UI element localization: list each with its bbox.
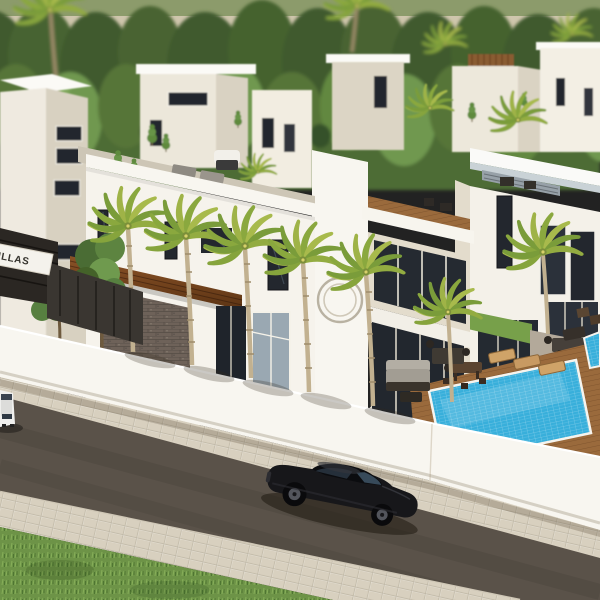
render-canvas: VILLAS: [0, 0, 600, 600]
background-villa-block: [326, 54, 410, 150]
villa-render-screenshot: VILLAS: [0, 0, 600, 600]
background-villa-block: [536, 42, 600, 152]
background-villa-block: [252, 90, 312, 188]
